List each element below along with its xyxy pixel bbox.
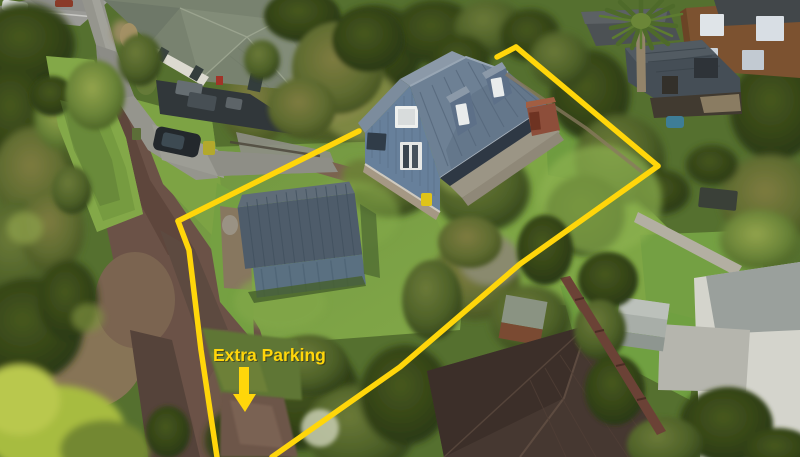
svg-text:Extra Parking: Extra Parking xyxy=(213,345,326,365)
